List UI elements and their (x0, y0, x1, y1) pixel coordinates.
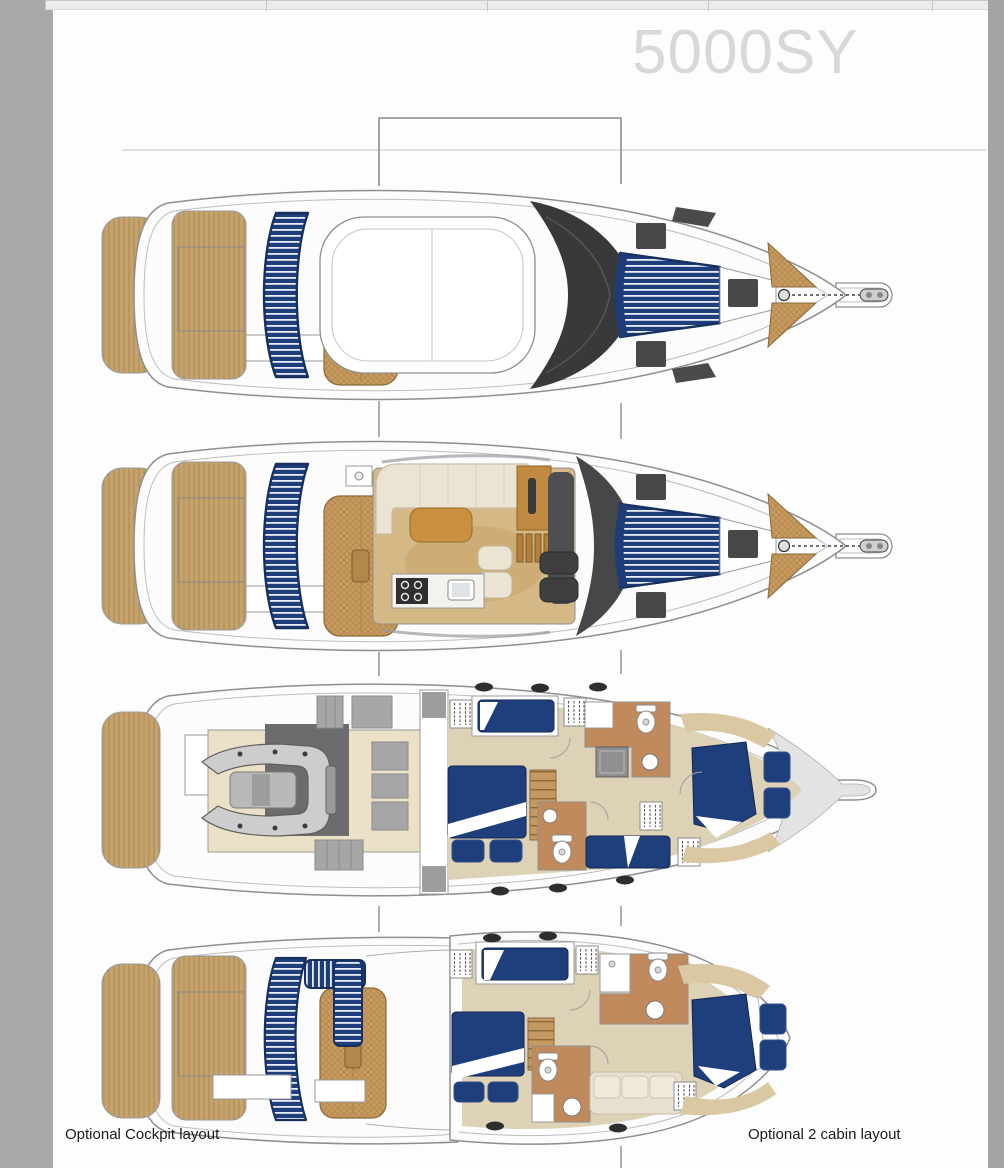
galley-sink (448, 580, 474, 600)
galley-stove (396, 578, 428, 604)
anchor-locker (768, 554, 816, 598)
deck-hatch (636, 341, 666, 367)
top-bar-tick (932, 1, 933, 11)
top-bar-tick (487, 1, 488, 11)
page-title: 5000SY (632, 22, 892, 84)
toilet (552, 835, 572, 863)
cockpit-teak-deck (172, 462, 246, 630)
anchor-locker (768, 243, 816, 287)
vip-seat-cushion (764, 752, 790, 782)
caption-optional-cockpit: Optional Cockpit layout (65, 1126, 219, 1143)
top-bar-tick (708, 1, 709, 11)
vip-seat-cushion (760, 1040, 786, 1070)
swim-platform (102, 964, 160, 1118)
bathroom-aft (532, 1046, 590, 1122)
top-bar-tick (45, 1, 46, 11)
shower-stall (596, 747, 628, 777)
toilet (636, 705, 656, 733)
engine-room-bulkhead (420, 690, 448, 894)
cockpit-teak-deck (172, 211, 246, 379)
vent-coil (450, 700, 472, 728)
toilet (538, 1053, 558, 1081)
sink (646, 1001, 664, 1019)
viewer-right-margin (988, 0, 1004, 1168)
viewer-top-bar (45, 0, 1004, 10)
top-bar-tick (266, 1, 267, 11)
deck-hatch (315, 1080, 365, 1102)
sink (642, 754, 658, 770)
deck-hatch (728, 530, 758, 558)
saloon-sofa-lower (590, 1072, 682, 1114)
sink (563, 1098, 581, 1116)
vip-seat-cushion (760, 1004, 786, 1034)
brochure-page: 5000SY (0, 0, 1004, 1168)
vent-coil (576, 946, 598, 974)
bathroom-aft (538, 802, 586, 870)
caption-optional-two-cabin: Optional 2 cabin layout (748, 1126, 901, 1143)
swim-platform (102, 712, 160, 868)
deck-plan-optional-cockpit (80, 934, 460, 1150)
vent-coil (564, 698, 586, 726)
single-berth (586, 836, 670, 868)
sink (543, 809, 557, 823)
twin-berth (472, 696, 558, 736)
deck-hatch (636, 223, 666, 249)
viewer-left-margin (0, 0, 53, 1168)
deck-hatch (636, 474, 666, 500)
vip-seat-cushion (764, 788, 790, 818)
anchor-locker (768, 494, 816, 538)
bathroom-forward (600, 953, 688, 1024)
toilet (648, 953, 668, 981)
helm-seat (540, 578, 578, 602)
deck-hatch (728, 279, 758, 307)
dinette-table (410, 508, 472, 542)
vent-coil (640, 802, 662, 830)
saloon (346, 456, 578, 637)
deck-plan-flybridge (80, 183, 910, 407)
helm-seat (540, 552, 578, 574)
deck-plan-main-deck (80, 434, 910, 658)
armchair (478, 546, 512, 570)
deck-plan-optional-two-cabin (440, 924, 800, 1152)
deck-plan-lower-deck (80, 674, 910, 910)
flybridge-hardtop (320, 217, 535, 373)
deck-hatch (636, 592, 666, 618)
cockpit-hatch (213, 1075, 291, 1099)
vent-coil (450, 950, 472, 978)
mid-cabin-double-bed (452, 1012, 524, 1102)
twin-berth (476, 942, 574, 984)
anchor-locker (768, 303, 816, 347)
